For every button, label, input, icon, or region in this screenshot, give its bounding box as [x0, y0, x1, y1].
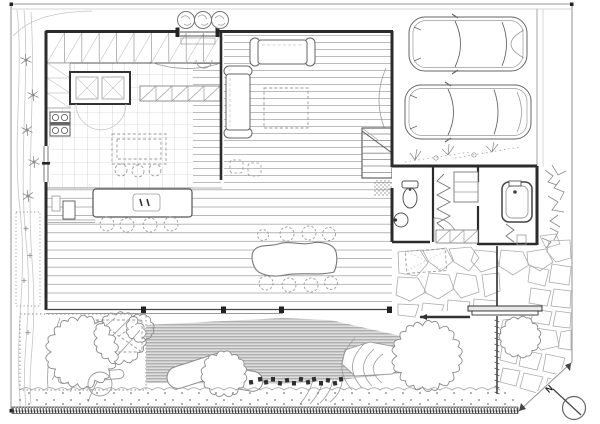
- window-left: [42, 146, 50, 182]
- dark-rock: [249, 380, 254, 385]
- dark-rock: [339, 377, 344, 382]
- toilet: [402, 181, 418, 208]
- flagstone: [424, 273, 454, 299]
- closet-shelves: [454, 172, 478, 202]
- flagstone: [499, 250, 529, 275]
- flagstone: [500, 368, 520, 386]
- garden-fence: [495, 316, 500, 394]
- flagstone: [520, 373, 543, 393]
- south-boundary-wall: [12, 407, 518, 414]
- boundary-arrow: [519, 403, 526, 411]
- door-mat: [374, 180, 392, 196]
- dark-rock: [285, 378, 290, 383]
- step-hatch-row: [140, 86, 220, 101]
- dining-table: [252, 242, 337, 276]
- closet-hatch-row: [436, 230, 478, 243]
- dark-rock: [306, 380, 311, 385]
- flagstone: [558, 330, 571, 350]
- pantry-box: [70, 72, 130, 104]
- stove-4-burner: [50, 112, 70, 136]
- dark-rock: [333, 381, 338, 386]
- dark-rock: [319, 381, 323, 386]
- flagstone: [529, 288, 551, 306]
- staircase: [362, 128, 392, 178]
- bathtub: [502, 181, 532, 222]
- garden-gate: [468, 306, 542, 311]
- dark-rock: [264, 380, 269, 385]
- entry-planters: [178, 12, 229, 29]
- dark-rock: [271, 377, 275, 382]
- gate-and-fence: [420, 246, 542, 320]
- flagstone: [396, 277, 426, 301]
- dark-rock: [326, 378, 331, 383]
- flagstone: [528, 266, 549, 286]
- dark-rock: [312, 377, 317, 382]
- stepping-mat: [405, 249, 446, 274]
- dark-rock: [292, 381, 296, 386]
- counter: [93, 189, 192, 217]
- dark-rock: [278, 381, 283, 386]
- survey-mark: [570, 3, 574, 7]
- survey-mark: [10, 3, 14, 7]
- north-arrow: N: [543, 383, 585, 420]
- dark-rock: [258, 377, 263, 382]
- car-2: [405, 82, 531, 142]
- carport: [405, 9, 537, 166]
- flagstone: [421, 303, 444, 316]
- bathroom-block: [392, 166, 537, 245]
- floor-plan-drawing: N: [0, 0, 600, 424]
- shrub-outline: [392, 320, 462, 391]
- planter-bed: [16, 212, 40, 306]
- flagstone: [549, 264, 571, 285]
- dark-rock: [299, 377, 304, 382]
- gravel-strip: [14, 392, 516, 407]
- flagstone: [453, 273, 479, 298]
- weed-sketches: [405, 142, 520, 162]
- stove-control-band: [50, 122, 70, 126]
- flagstone: [553, 311, 571, 328]
- north-label: N: [543, 383, 555, 395]
- flagstone: [447, 300, 470, 314]
- passage-plank-floor: [193, 63, 221, 188]
- flagstone: [398, 304, 419, 317]
- flagstone: [551, 289, 571, 308]
- garden: [12, 312, 541, 414]
- flagstone: [423, 248, 453, 271]
- flagstone: [547, 240, 571, 262]
- car-1: [409, 14, 527, 74]
